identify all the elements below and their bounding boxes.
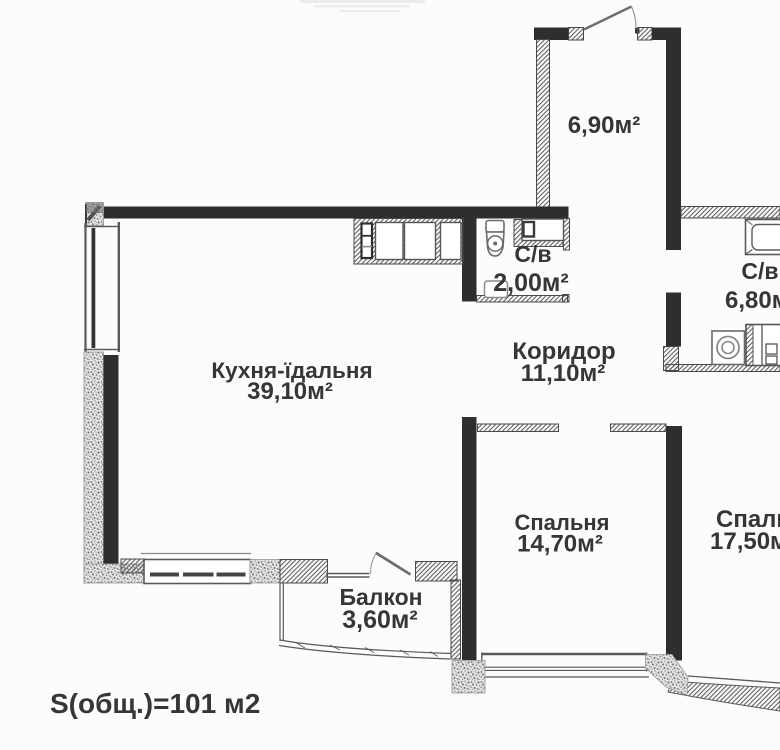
svg-text:S(общ.)=101 м2: S(общ.)=101 м2 [50,688,260,719]
svg-text:6,80м²: 6,80м² [725,287,780,314]
svg-text:14,70м²: 14,70м² [517,531,603,558]
svg-text:2,00м²: 2,00м² [493,269,568,297]
svg-text:17,50м²: 17,50м² [710,528,780,555]
svg-text:11,10м²: 11,10м² [521,360,605,387]
svg-text:6,90м²: 6,90м² [568,112,640,139]
svg-text:С/в: С/в [514,241,551,267]
svg-text:3,60м²: 3,60м² [342,606,417,634]
svg-text:39,10м²: 39,10м² [247,378,333,405]
svg-text:С/в: С/в [741,258,778,284]
